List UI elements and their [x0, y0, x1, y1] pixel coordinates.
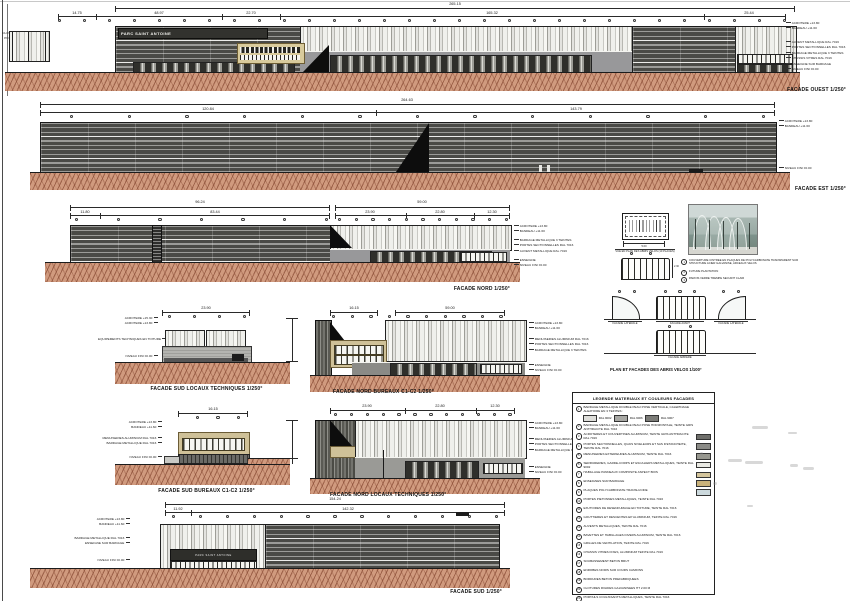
- dim-label: 5.00: [641, 245, 646, 248]
- legend-item: 19 BORDURES BETON PREFABRIQUEES: [576, 578, 712, 585]
- annotations: BARDAGE METALLIQUE 3 TEINTESPORTES SECTI…: [514, 238, 570, 254]
- legend-item-text: PORTES PIETONNES METALLIQUES, TEINTE RAL…: [583, 498, 694, 502]
- legend-item: 15 GRILLES DE VENTILATION, TEINTE RAL 70…: [576, 542, 712, 549]
- dim-line: [162, 312, 250, 313]
- dim-label: 23.90: [362, 404, 372, 408]
- dim-label-total: 154.24: [329, 497, 341, 501]
- legend-item-number: 1: [576, 406, 582, 412]
- annotations: NIVEAU FINI ±0.00: [68, 558, 130, 563]
- facade-nord-bureaux-title: FACADE NORD BUREAUX C1-C2 1/250°: [333, 389, 434, 395]
- legend-item-number: 16: [576, 551, 582, 557]
- dim-label: 59.00: [445, 306, 455, 310]
- facade-nord-title: FACADE NORD 1/250°: [430, 286, 510, 292]
- sheet-top-line: [0, 1, 850, 2]
- annotations: ACROTERE +13.80BANDEAU +11.60: [68, 517, 130, 528]
- legend-item-text: SERRURERIES, GARDE-CORPS ET ESCALIERS ME…: [583, 462, 694, 470]
- legend-item-swatch: [696, 453, 711, 460]
- scan-smudge: [803, 467, 814, 470]
- enseigne-mark: [456, 512, 469, 516]
- annotations: ENSEIGNE SUR BARDAGENIVEAU FINI ±0.00: [786, 62, 848, 73]
- parc-saint-antoine-sign: PARC SAINT ANTOINE: [118, 28, 268, 39]
- dim-label: 11.80: [80, 210, 89, 214]
- dim-label: 12.30: [490, 404, 500, 408]
- legend-item-text: AUVENTS METALLIQUES, TEINTE RAL 7016: [583, 525, 694, 529]
- dim-label: 83.44: [210, 210, 220, 214]
- abris-photo: [688, 204, 758, 255]
- window-band: [737, 54, 793, 64]
- cladding-stripes: [300, 26, 637, 53]
- entry-steps: [164, 456, 180, 464]
- dim-line: [115, 8, 795, 9]
- legend-item-number: 17: [576, 560, 582, 566]
- dim-line: [40, 104, 775, 105]
- legend-item-text: PLAQUES POLYCARBONATE TRANSLUCIDE: [583, 489, 694, 493]
- cladding-dark-block: [632, 26, 737, 74]
- legend-item-text: PORTES SECTIONNELLES, QUAIS NIVELEURS ET…: [583, 443, 694, 451]
- legend-item-text: ACROTERES ET COUVERTINES ALUMINIUM, TEIN…: [583, 433, 694, 441]
- dim-label: 143.79: [570, 107, 582, 111]
- legend-item: 4 PORTES SECTIONNELLES, QUAIS NIVELEURS …: [576, 443, 712, 451]
- dim-label: 23.90: [365, 210, 375, 214]
- legend-item-text: BORDURES BETON PREFABRIQUEES: [583, 578, 694, 582]
- dim-label: 48.97: [154, 11, 164, 15]
- ground-line: [604, 353, 756, 354]
- abris-lateral-elevation: [718, 296, 746, 320]
- window-row: [182, 438, 245, 451]
- dim-line: [395, 312, 505, 313]
- facade-nord-elevation: [70, 225, 510, 262]
- dim-label-total: 59.00: [417, 200, 427, 204]
- dim-line-segments: [70, 215, 330, 216]
- scan-smudge: [745, 461, 763, 464]
- grid-bubbles: [334, 413, 512, 416]
- scan-smudge: [788, 432, 797, 434]
- legend-item-text: HABILLAGE PANNEAUX COMPOSITE ASPECT BOIS: [583, 471, 694, 475]
- legend-item: 12 GOUTTIERES ET DESCENTES EP ALUMINIUM,…: [576, 516, 712, 523]
- cladding-dark-block: [70, 225, 332, 264]
- drawing-sheet: 265.15 14.75 48.97 22.70 165.32 25.44 CL…: [0, 0, 850, 601]
- legend-item-number: 5: [576, 453, 582, 459]
- abris-laterale-label: FACADE LATERALE: [608, 321, 642, 325]
- legend-item: 16 CHASSIS VITRES FIXES, ALUMINIUM TEINT…: [576, 551, 712, 558]
- dim-label: 14.75: [72, 11, 82, 15]
- legend-item-text: CLOTURES RIGIDES GALVANISEES HT 2.00 M: [583, 587, 694, 591]
- dim-line: [335, 207, 510, 208]
- dim-label: 165.32: [486, 11, 498, 15]
- dim-label: 16.15: [349, 306, 359, 310]
- abris-lateral-elevation: [612, 296, 640, 320]
- annotations: ACROTERE +13.80BANDEAU +11.60: [779, 119, 839, 130]
- level-tick: [286, 318, 298, 319]
- dim-label: 25.44: [744, 11, 754, 15]
- scan-smudge: [752, 426, 768, 429]
- abris-plan-view: [622, 213, 669, 240]
- dim-label: 16.15: [208, 407, 218, 411]
- dim-label: 23.90: [201, 306, 211, 310]
- dim-line-segments: [40, 112, 775, 113]
- grid-bubbles: [668, 325, 692, 328]
- legend-item: 17 SOUBASSEMENT BETON BRUT: [576, 560, 712, 567]
- ladder: [152, 225, 162, 264]
- legend-item-number: 9: [576, 489, 582, 495]
- cladding-stripes: [330, 225, 512, 251]
- annotations: NIVEAU FINI ±0.00: [98, 354, 158, 359]
- legend-item-swatch: [696, 480, 711, 487]
- legend-item: 9 PLAQUES POLYCARBONATE TRANSLUCIDE: [576, 489, 712, 496]
- dim-line: [70, 207, 330, 208]
- dim-label: 12.30: [487, 210, 497, 214]
- height-dim: [672, 258, 673, 278]
- ground-hatch: [115, 362, 290, 384]
- legend-item-text: SOUBASSEMENT BETON BRUT: [583, 560, 694, 564]
- legend-item-number: 14: [576, 534, 582, 540]
- dim-line: [330, 410, 515, 411]
- legend-item: 10 PORTES PIETONNES METALLIQUES, TEINTE …: [576, 498, 712, 505]
- fence-elevation: [9, 31, 50, 62]
- annotations: ACROTERE +13.80BANDEAU +11.60: [100, 420, 162, 431]
- grid-bubbles: [332, 315, 503, 318]
- legend-item-number: 6: [576, 462, 582, 468]
- note-text: COUVERTURE CINTREE EN PLAQUES DE POLYCAR…: [689, 259, 805, 266]
- abris-title: PLAN ET FACADES DES ABRIS VELOS 1/100°: [610, 367, 702, 372]
- legend-item-text: PORTAILS COULISSANTS METALLIQUES, TEINTE…: [583, 596, 694, 600]
- cladding-dark-block: [265, 524, 500, 570]
- legend-ral-swatches: RAL 9002RAL 9006RAL 9007: [583, 415, 712, 421]
- legend-item: 3 ACROTERES ET COUVERTINES ALUMINIUM, TE…: [576, 433, 712, 441]
- dim-line: [165, 504, 505, 505]
- legend-item-swatch: [696, 443, 711, 450]
- abris-note: 1 COUVERTURE CINTREE EN PLAQUES DE POLYC…: [681, 259, 805, 266]
- dock-doors: [405, 461, 479, 479]
- abris-front-elevation: [621, 258, 670, 280]
- legend-item-number: 7: [576, 471, 582, 477]
- sheet-left-border: [2, 0, 3, 601]
- abris-laterale-label: FACADE LATERALE: [714, 321, 748, 325]
- legend-item-number: 19: [576, 578, 582, 584]
- annotations: NIVEAU FINI ±0.00: [100, 455, 162, 460]
- legend-item-number: 13: [576, 525, 582, 531]
- legend-box: LEGENDE MATERIAUX ET COULEURS FACADES 1 …: [572, 392, 715, 595]
- legend-item: 13 AUVENTS METALLIQUES, TEINTE RAL 7016: [576, 525, 712, 532]
- window-band: [480, 364, 522, 374]
- facade-sud-bureaux-elevation: [178, 432, 248, 462]
- legend-item-swatch: [696, 462, 711, 469]
- legend-item-swatch: [696, 489, 711, 496]
- dim-line-segments: [335, 215, 510, 216]
- legend-item-number: 8: [576, 480, 582, 486]
- facade-nord-locaux-title: FACADE NORD LOCAUX TECHNIQUES 1/250°: [330, 492, 446, 498]
- annotations: ACROTERE +15.30ACROTERE +13.80: [98, 316, 158, 327]
- note-text: FUTURE PLANTATION: [689, 270, 718, 273]
- annotations: AUVENT METALLIQUE RAL 7016PORTES SECTION…: [786, 40, 848, 61]
- note-number: 3: [681, 277, 687, 283]
- facade-nord-locaux-elevation: [315, 420, 525, 478]
- scan-smudge: [790, 464, 798, 467]
- legend-item: 1 BARDAGE METALLIQUE DOUBLE PEAU POSE VE…: [576, 406, 712, 414]
- dim-line-segments: [165, 512, 505, 513]
- legend-item-number: 4: [576, 443, 582, 449]
- dim-label: 120.84: [202, 107, 214, 111]
- legend-item-number: 11: [576, 507, 582, 513]
- legend-item: 7 HABILLAGE PANNEAUX COMPOSITE ASPECT BO…: [576, 471, 712, 478]
- facade-ouest-title: FACADE OUEST 1/250°: [740, 87, 846, 93]
- legend-item: 18 ENROBES NOIRS SUR COURS CAMIONS: [576, 569, 712, 576]
- facade-sud-locaux-title: FACADE SUD LOCAUX TECHNIQUES 1/250°: [140, 386, 273, 392]
- legend-item-number: 12: [576, 516, 582, 522]
- legend-item: 11 EXUTOIRES DE DESENFUMAGE EN TOITURE, …: [576, 507, 712, 514]
- legend-items: 1 BARDAGE METALLIQUE DOUBLE PEAU POSE VE…: [573, 404, 714, 601]
- facade-nord-bureaux-elevation: [315, 320, 525, 375]
- dim-label: 22.80: [435, 404, 445, 408]
- legend-item-text: CHASSIS VITRES FIXES, ALUMINIUM TEINTE R…: [583, 551, 694, 555]
- annotations: ACROTERE +13.80BANDEAU +11.60: [786, 21, 848, 32]
- legend-item-text: GOUTTIERES ET DESCENTES EP ALUMINIUM, TE…: [583, 516, 694, 520]
- grid-bubbles: [664, 290, 696, 293]
- dim-label-total: 265.15: [449, 2, 461, 6]
- abris-note: 3 PAROIS VERRE TREMPE SECURIT CLAIR: [681, 277, 805, 283]
- annotations: ENSEIGNENIVEAU FINI ±0.00: [514, 258, 570, 269]
- annotations: ENSEIGNENIVEAU FINI ±0.00: [529, 363, 585, 374]
- window-band: [483, 463, 523, 474]
- legend-item: 8 ENSEIGNES SUR BARDAGE: [576, 480, 712, 487]
- legend-title: LEGENDE MATERIAUX ET COULEURS FACADES: [573, 393, 714, 404]
- grid-bubbles: [168, 315, 246, 318]
- cladding-stripes: [385, 320, 527, 362]
- legend-item-swatch: [696, 472, 711, 479]
- grid-bubbles: [70, 115, 765, 118]
- legend-item-number: 10: [576, 498, 582, 504]
- legend-item-text: BARDAGE METALLIQUE DOUBLE PEAU POSE VERT…: [583, 406, 694, 414]
- grid-bubbles: [338, 218, 508, 221]
- base-band: [178, 454, 250, 464]
- ground-hatch: [45, 262, 520, 282]
- abris-note: 2 FUTURE PLANTATION: [681, 270, 805, 276]
- grid-bubbles: [722, 290, 740, 293]
- scan-smudge: [713, 482, 717, 485]
- legend-item-number: 3: [576, 433, 582, 439]
- annotations: ACROTERE +13.80BANDEAU +11.60: [514, 224, 570, 235]
- tan-band: [330, 446, 357, 458]
- ground-hatch: [5, 72, 800, 91]
- abris-front-elevation: [656, 296, 706, 320]
- height-dim-label: 2.30: [674, 265, 679, 268]
- level-ref-line: [292, 318, 293, 362]
- legend-item-text: GRILLES DE VENTILATION, TEINTE RAL 7016: [583, 542, 694, 546]
- facade-sud-locaux-elevation: [162, 330, 250, 362]
- dim-line: [330, 312, 378, 313]
- facade-ouest-elevation: PARC SAINT ANTOINE: [115, 26, 795, 72]
- legend-item-number: 20: [576, 587, 582, 593]
- grid-bubbles: [618, 290, 636, 293]
- facade-sud-bureaux-title: FACADE SUD BUREAUX C1-C2 1/250°: [140, 488, 273, 494]
- legend-item-text: EXUTOIRES DE DESENFUMAGE EN TOITURE, TEI…: [583, 507, 694, 511]
- abris-rear-elevation: [656, 330, 706, 354]
- abris-arriere-label: FACADE ARRIERE: [654, 355, 706, 359]
- ground-line: [604, 319, 756, 320]
- legend-item: 2 BARDAGE METALLIQUE DOUBLE PEAU POSE HO…: [576, 424, 712, 432]
- legend-item-number: 15: [576, 542, 582, 548]
- window-band: [460, 252, 507, 262]
- grid-bubbles: [58, 19, 786, 22]
- legend-item-text: ENSEIGNES SUR BARDAGE: [583, 480, 694, 484]
- annotations: ACROTERE +13.80BANDEAU +11.60: [529, 321, 585, 332]
- dark-triangle: [396, 123, 429, 172]
- dim-label: 11.92: [173, 507, 182, 511]
- annotations: MENUISERIES ALUMINIUM RAL 7016PORTES SEC…: [529, 337, 585, 353]
- note-number: 2: [681, 270, 687, 276]
- annotations: BARDAGE METALLIQUE RAL 7016ENSEIGNE SUR …: [68, 536, 130, 547]
- ground-hatch: [115, 464, 290, 485]
- legend-item-number: 18: [576, 569, 582, 575]
- dim-line: [178, 413, 248, 414]
- fence-pole: [383, 450, 384, 478]
- grid-bubbles: [630, 252, 652, 255]
- scan-smudge: [747, 505, 753, 507]
- facade-est-elevation: [40, 122, 777, 174]
- ground-hatch: [30, 568, 510, 588]
- ground-hatch: [30, 172, 790, 190]
- legend-item-text: BARDAGE METALLIQUE DOUBLE PEAU POSE HORI…: [583, 424, 694, 432]
- note-number: 1: [681, 259, 687, 265]
- facade-sud-sign: PARC SAINT ANTOINE: [170, 549, 257, 561]
- facade-sud-title: FACADE SUD 1/250°: [430, 589, 502, 595]
- dim-label: 22.80: [435, 210, 445, 214]
- dim-label: 22.70: [246, 11, 256, 15]
- note-text: PAROIS VERRE TREMPE SECURIT CLAIR: [689, 277, 744, 280]
- legend-item-text: ENROBES NOIRS SUR COURS CAMIONS: [583, 569, 694, 573]
- cladding-stripes: [355, 420, 527, 459]
- level-tick: [286, 420, 298, 421]
- annotations: MENUISERIES ALUMINIUM RAL 7016BARDAGE ME…: [100, 436, 162, 447]
- entrance-feature: [237, 43, 305, 64]
- legend-item-text: BAVETTES ET HABILLAGES DIVERS ALUMINIUM,…: [583, 534, 694, 538]
- legend-item-number: 2: [576, 424, 582, 430]
- grid-bubbles: [196, 416, 240, 419]
- facade-sud-elevation: PARC SAINT ANTOINE: [160, 524, 498, 568]
- grid-bubbles: [75, 218, 328, 221]
- scan-smudge: [700, 452, 703, 456]
- legend-item: 20 CLOTURES RIGIDES GALVANISEES HT 2.00 …: [576, 587, 712, 594]
- dim-label: 142.32: [342, 507, 354, 511]
- legend-item-swatch: [696, 434, 711, 441]
- dim-label-total: 96.24: [195, 200, 205, 204]
- scan-smudge: [728, 459, 742, 462]
- legend-item-number: 21: [576, 596, 582, 601]
- legend-item: 5 MENUISERIES EXTERIEURES ALUMINIUM, TEI…: [576, 453, 712, 460]
- dim-label-total: 264.63: [401, 98, 413, 102]
- legend-item: 14 BAVETTES ET HABILLAGES DIVERS ALUMINI…: [576, 534, 712, 541]
- dim-line-segments: [58, 16, 786, 17]
- legend-item: 6 SERRURERIES, GARDE-CORPS ET ESCALIERS …: [576, 462, 712, 470]
- grid-bubbles: [172, 515, 498, 518]
- annotations: EQUIPEMENTS TECHNIQUES EN TOITURE: [98, 337, 158, 342]
- annotations: NIVEAU FINI ±0.00: [779, 166, 839, 171]
- facade-est-title: FACADE EST 1/250°: [740, 186, 846, 192]
- legend-item-text: MENUISERIES EXTERIEURES ALUMINIUM, TEINT…: [583, 453, 694, 457]
- legend-item: 21 PORTAILS COULISSANTS METALLIQUES, TEI…: [576, 596, 712, 601]
